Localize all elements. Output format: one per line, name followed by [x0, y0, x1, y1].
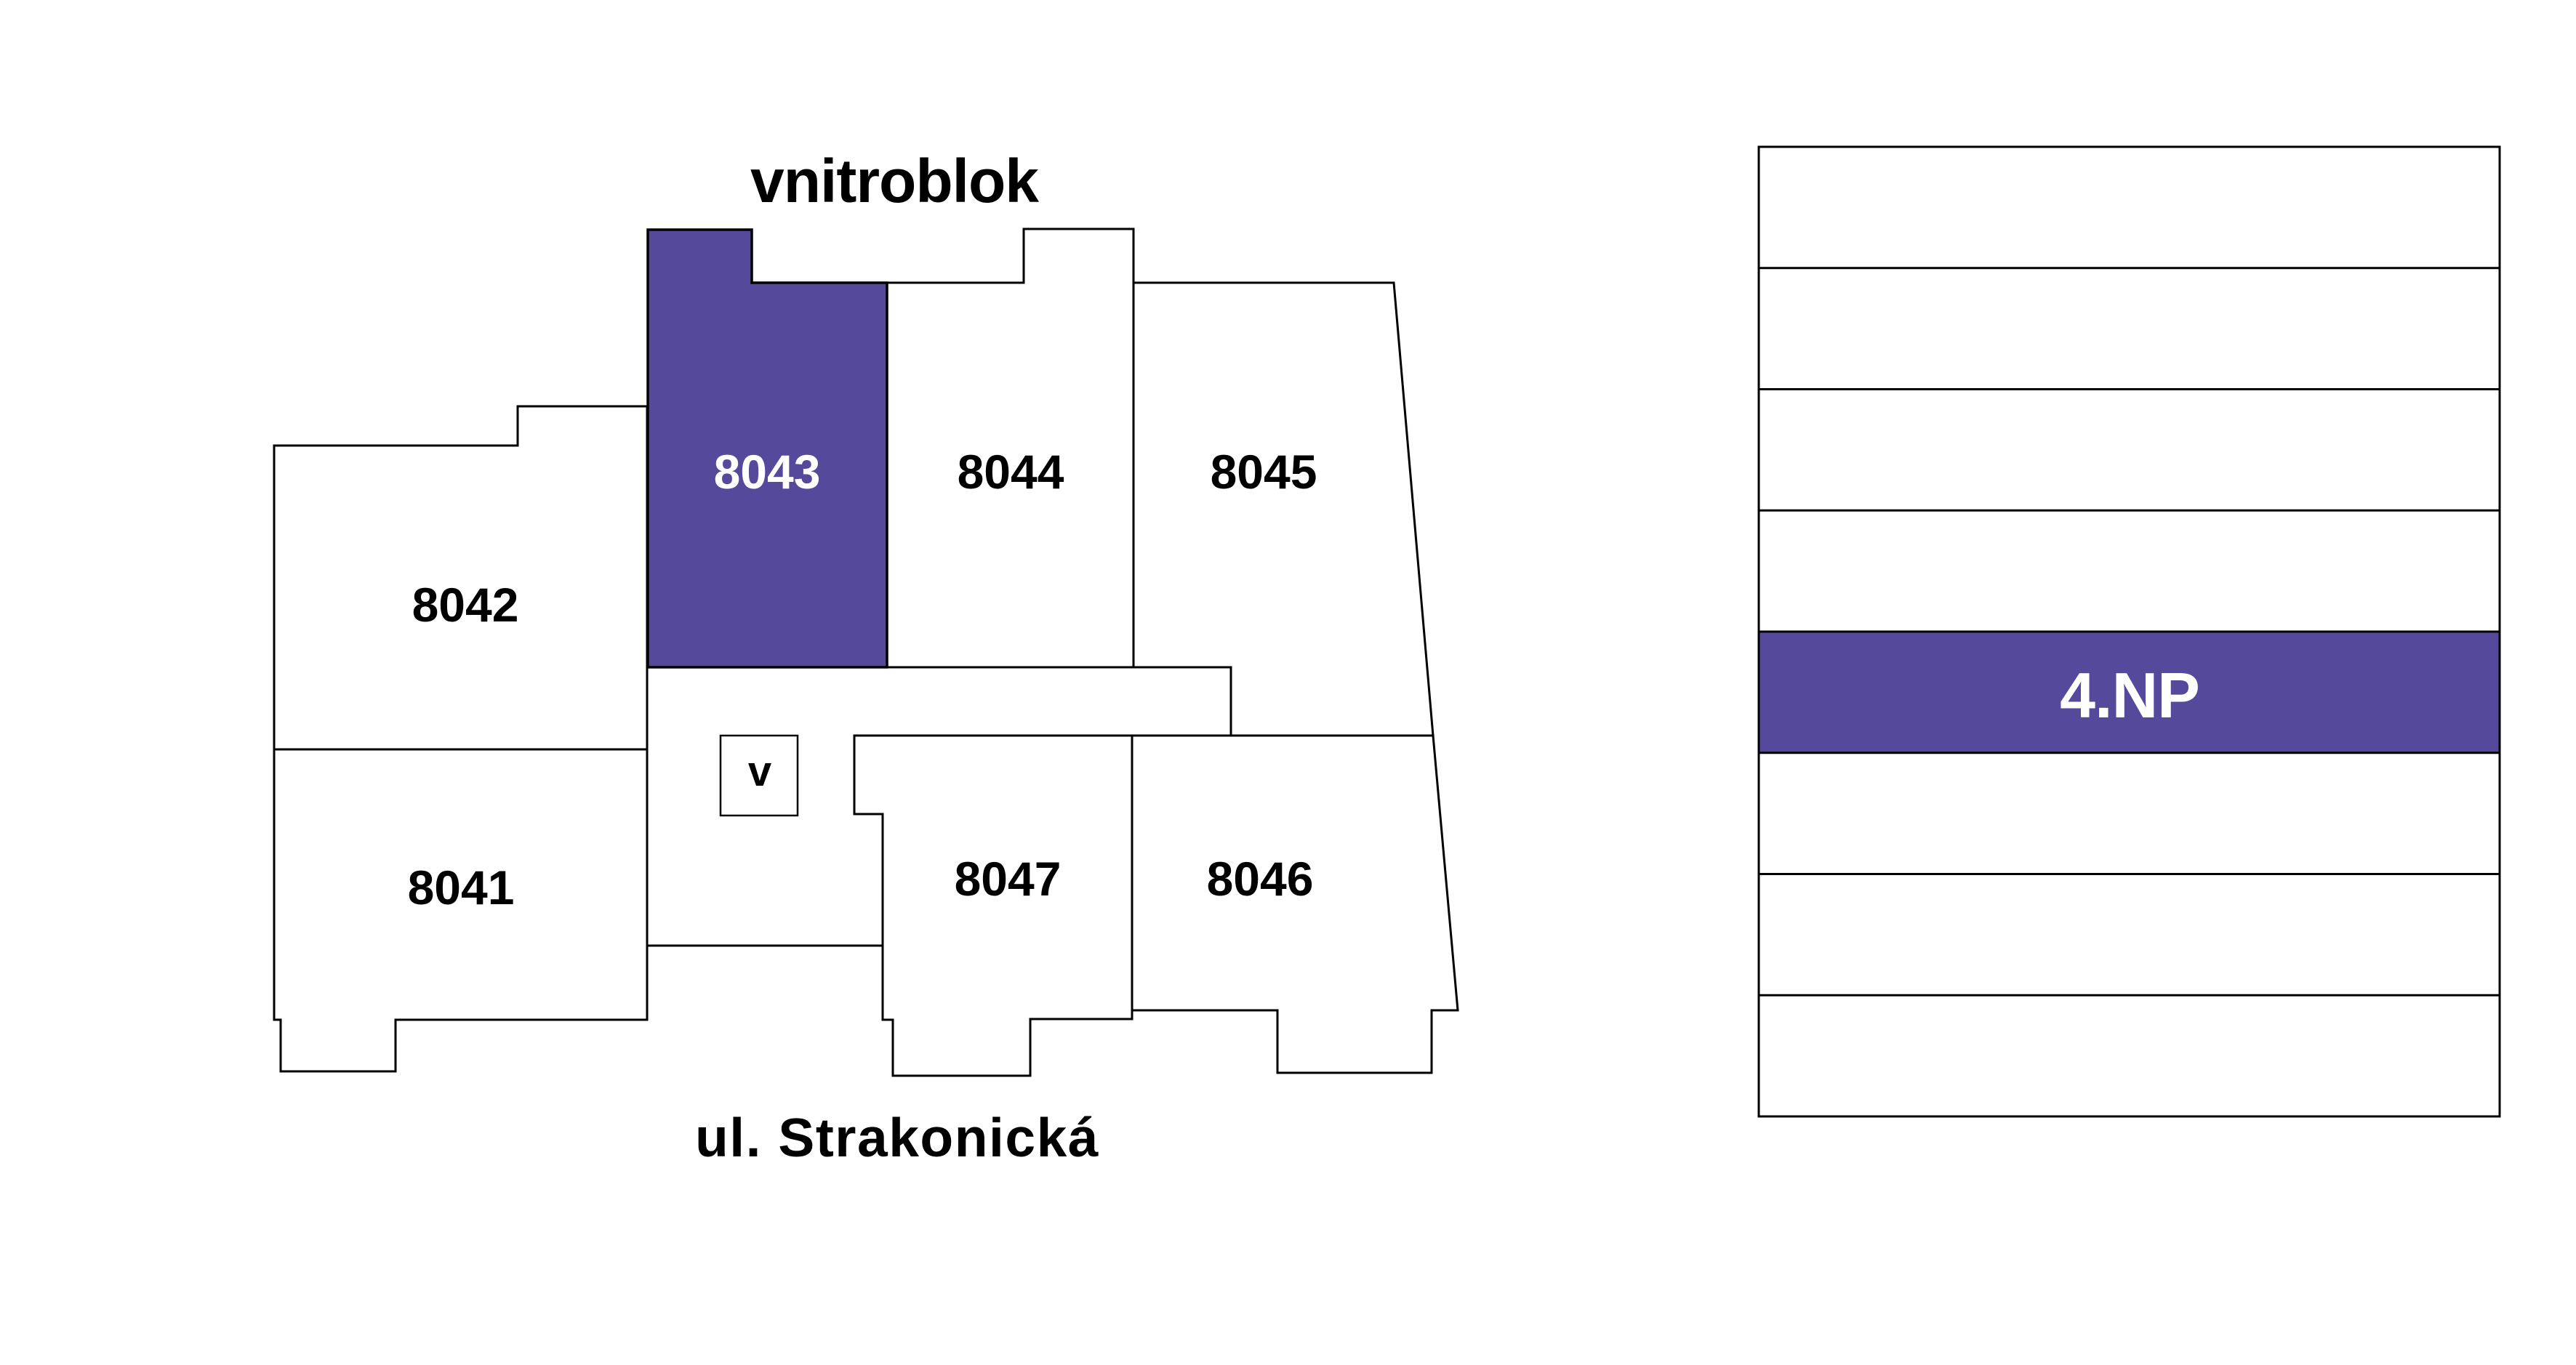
svg-text:v: v: [748, 748, 771, 795]
svg-text:8047: 8047: [955, 852, 1062, 906]
svg-text:8046: 8046: [1207, 852, 1314, 906]
svg-text:8041: 8041: [408, 861, 515, 914]
svg-text:4.NP: 4.NP: [2060, 659, 2199, 731]
svg-text:8042: 8042: [412, 578, 519, 632]
svg-text:8045: 8045: [1211, 445, 1317, 499]
svg-text:8044: 8044: [958, 445, 1064, 499]
svg-text:8043: 8043: [714, 445, 821, 499]
svg-text:ul. Strakonická: ul. Strakonická: [695, 1107, 1099, 1168]
svg-text:vnitroblok: vnitroblok: [750, 147, 1039, 215]
